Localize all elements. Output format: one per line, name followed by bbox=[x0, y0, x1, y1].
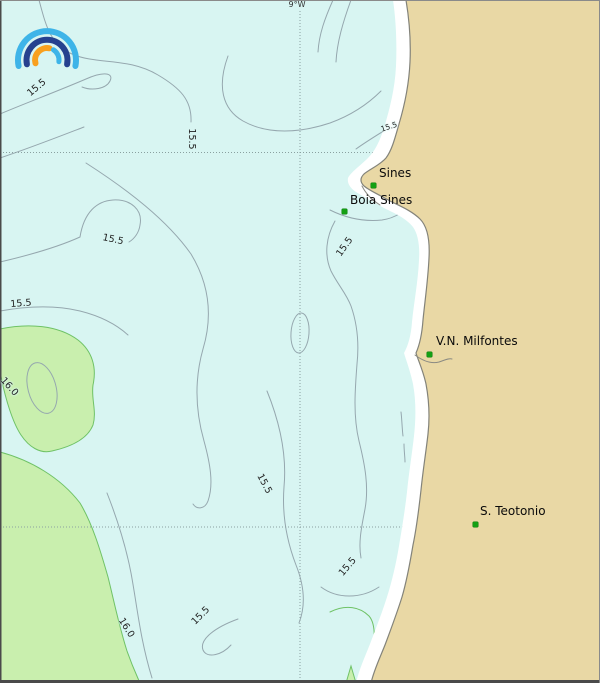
logo-orange-arc bbox=[35, 48, 49, 63]
label-layer: SinesBoia SinesV.N. MilfontesS. Teotonio… bbox=[0, 0, 600, 683]
ipma-logo-icon bbox=[10, 12, 88, 70]
contour-value-label: 15.5 bbox=[186, 128, 196, 149]
s-teotonio-dot bbox=[473, 522, 478, 527]
contour-value-label: 15.5 bbox=[26, 78, 48, 99]
contour-value-label: 15.5 bbox=[10, 298, 32, 309]
contour-value-label: 15.5 bbox=[255, 472, 273, 495]
place-label-s-teotonio: S. Teotonio bbox=[480, 505, 546, 517]
place-label-sines: Sines bbox=[379, 167, 411, 179]
place-label-v-n-milfontes: V.N. Milfontes bbox=[436, 335, 518, 347]
coastal-contour-map: 9°W SinesBoia SinesV.N. MilfontesS. Teot… bbox=[0, 0, 600, 683]
contour-value-label: 15.5 bbox=[338, 556, 359, 578]
contour-value-label: 15.5 bbox=[380, 121, 398, 133]
contour-value-label: 15.5 bbox=[335, 236, 355, 259]
contour-value-label: 16.0 bbox=[0, 376, 20, 398]
sines-dot bbox=[371, 183, 376, 188]
v-n-milfontes-dot bbox=[427, 352, 432, 357]
logo-inner-arc bbox=[53, 50, 59, 62]
contour-value-label: 15.5 bbox=[190, 605, 212, 627]
contour-value-label: 16.0 bbox=[116, 617, 135, 640]
boia-sines-dot bbox=[342, 209, 347, 214]
contour-value-label: 15.5 bbox=[102, 233, 125, 247]
place-label-boia-sines: Boia Sines bbox=[350, 194, 412, 206]
